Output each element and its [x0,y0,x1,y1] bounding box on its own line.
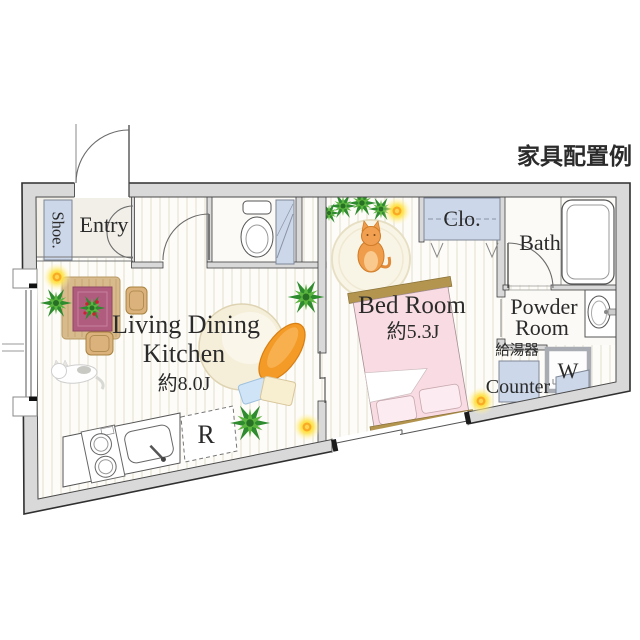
shoe-label: Shoe. [49,211,68,248]
bathtub [562,200,614,284]
entry-label: Entry [80,212,129,237]
closet-label: Clo. [443,206,480,231]
ldk-area-label: 約8.0J [158,372,211,395]
ldk-label-2: Kitchen [143,339,225,368]
floor-plan-page: 家具配置例 [0,0,640,640]
refrigerator-label: R [197,420,215,449]
washer-label: W [558,358,579,383]
bath-label: Bath [519,230,561,255]
powder-label-2: Room [515,315,569,340]
counter-label: Counter [486,376,551,398]
bedroom-label: Bed Room [358,292,466,319]
washbasin [585,290,617,337]
bedroom-area-label: 約5.3J [387,320,440,343]
floor-plan: 家具配置例 [0,0,640,640]
water-heater-label: 給湯器 [495,342,539,359]
ldk-label-1: Living Dining [112,310,260,339]
entrance-door [75,124,130,198]
balcony-window-left [2,269,37,416]
shoe-closet: Shoe. [44,200,72,260]
plan-title: 家具配置例 [517,143,632,169]
